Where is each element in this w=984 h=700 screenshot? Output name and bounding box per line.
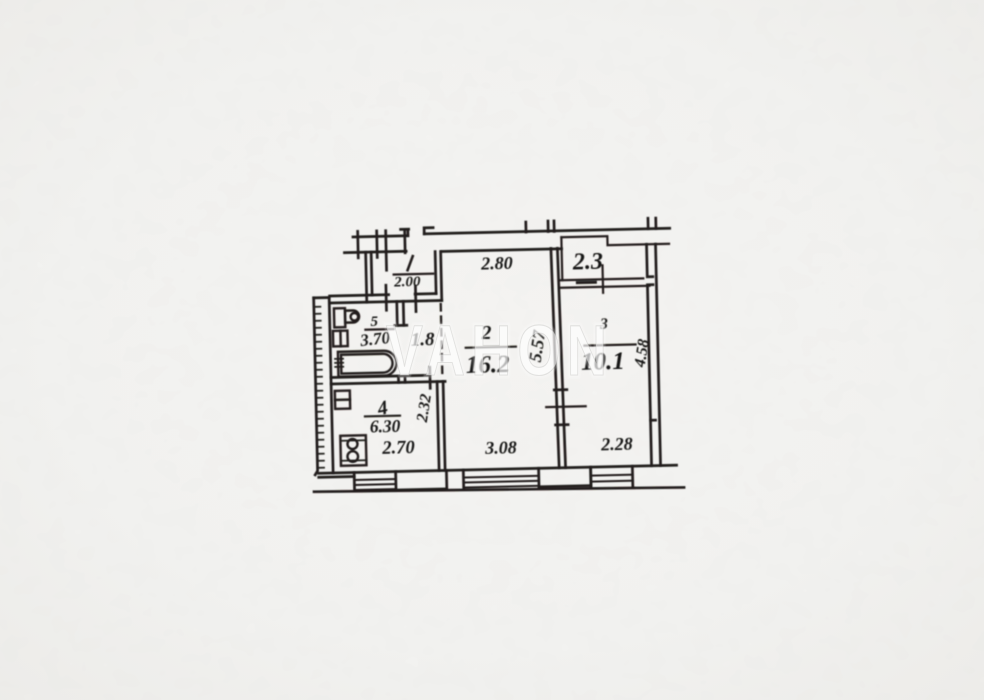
svg-text:VAHON: VAHON	[386, 311, 613, 390]
svg-text:3.08: 3.08	[484, 437, 517, 458]
svg-text:2.70: 2.70	[381, 438, 415, 459]
svg-text:5: 5	[370, 314, 378, 330]
svg-text:2.80: 2.80	[480, 253, 513, 274]
svg-text:2.00: 2.00	[393, 274, 421, 291]
svg-text:6.30: 6.30	[370, 416, 401, 437]
svg-text:2.28: 2.28	[600, 434, 633, 455]
svg-text:2.3: 2.3	[572, 249, 604, 276]
